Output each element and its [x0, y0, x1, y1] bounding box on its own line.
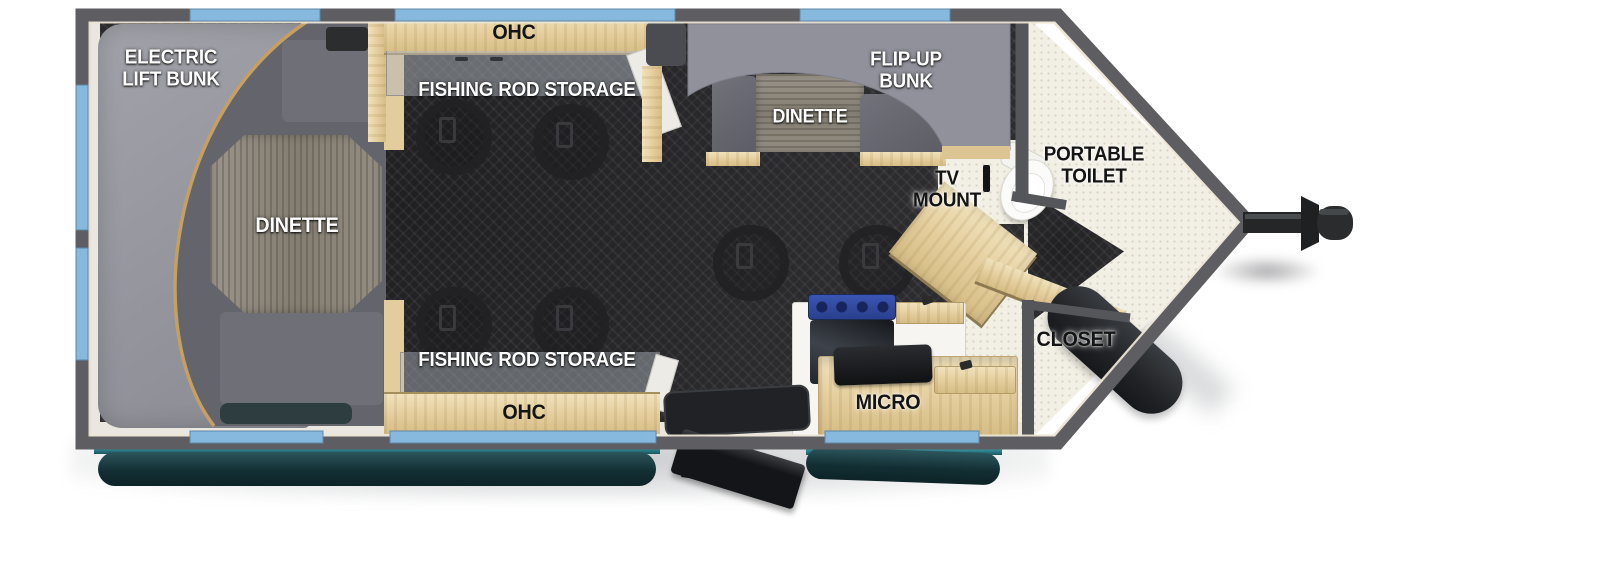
label-ohc-top: OHC: [492, 21, 535, 45]
label-ohc-bottom-text: OHC: [502, 401, 545, 424]
window-left-2: [76, 248, 88, 360]
label-portable-toilet-line2: TOILET: [1044, 166, 1145, 188]
closet-wall-top: [1022, 304, 1130, 318]
label-closet-text: CLOSET: [1037, 328, 1116, 351]
label-fishing-rod-storage-bottom: FISHING ROD STORAGE: [418, 349, 636, 371]
label-flip-up-bunk: FLIP-UP BUNK: [870, 49, 942, 94]
window-bottom-3: [825, 431, 979, 443]
label-electric-lift-bunk-line2: LIFT BUNK: [122, 69, 220, 91]
shell-overlay: [0, 0, 1600, 584]
window-top-2: [395, 9, 675, 21]
label-ohc-top-text: OHC: [492, 21, 535, 44]
label-micro: MICRO: [856, 391, 921, 415]
label-fishing-rod-storage-top: FISHING ROD STORAGE: [418, 79, 636, 101]
flip-up-bunk-wood-trim: [942, 146, 1010, 159]
label-closet: CLOSET: [1037, 328, 1116, 352]
label-portable-toilet: PORTABLE TOILET: [1044, 144, 1145, 189]
label-electric-lift-bunk: ELECTRIC LIFT BUNK: [122, 47, 220, 92]
window-top-1: [190, 9, 320, 21]
label-dinette-left: DINETTE: [255, 214, 338, 238]
label-portable-toilet-line1: PORTABLE: [1044, 144, 1145, 166]
label-dinette-left-text: DINETTE: [255, 214, 338, 237]
label-ohc-bottom: OHC: [502, 401, 545, 425]
label-micro-text: MICRO: [856, 391, 921, 414]
label-tv-mount-line1: TV: [913, 168, 981, 190]
window-bottom-2: [390, 431, 656, 443]
label-tv-mount: TV MOUNT: [913, 168, 981, 213]
hitch: [1243, 196, 1353, 251]
label-frs-top-text: FISHING ROD STORAGE: [418, 79, 636, 101]
label-flip-up-bunk-line2: BUNK: [870, 71, 942, 93]
label-flip-up-bunk-line1: FLIP-UP: [870, 49, 942, 71]
divider-wall-stub: [1012, 196, 1066, 205]
label-dinette-right-text: DINETTE: [772, 106, 847, 127]
label-dinette-right: DINETTE: [772, 106, 847, 127]
window-left-1: [76, 85, 88, 230]
window-top-3: [800, 9, 950, 21]
flip-up-bunk-platform: [688, 24, 1010, 150]
floorplan-canvas: ELECTRIC LIFT BUNK OHC FISHING ROD STORA…: [0, 0, 1600, 584]
window-bottom-1: [190, 431, 323, 443]
label-electric-lift-bunk-line1: ELECTRIC: [122, 47, 220, 69]
label-frs-bottom-text: FISHING ROD STORAGE: [418, 349, 636, 371]
label-tv-mount-line2: MOUNT: [913, 190, 981, 212]
